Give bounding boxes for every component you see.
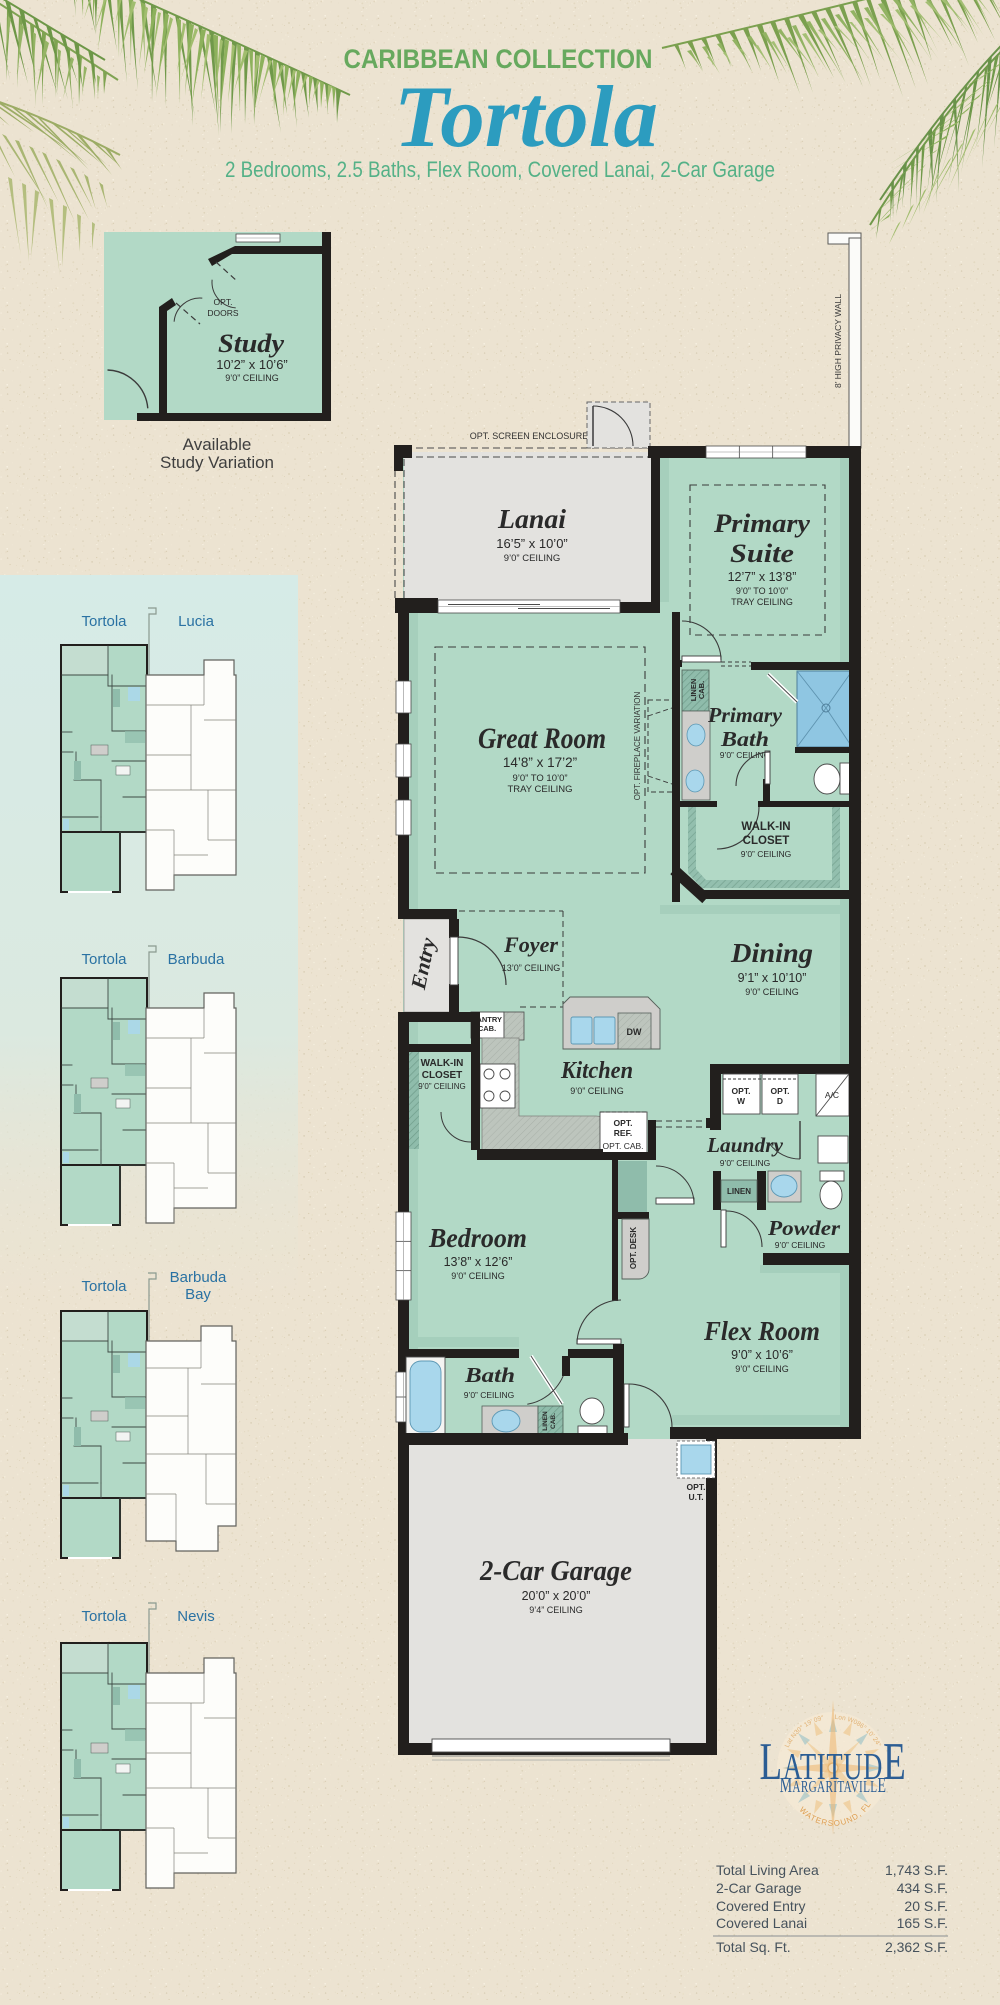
svg-text:10’2” x 10’6”: 10’2” x 10’6” <box>216 357 288 372</box>
svg-text:9’0” CEILING: 9’0” CEILING <box>464 1390 515 1400</box>
svg-text:Barbuda: Barbuda <box>170 1269 227 1286</box>
svg-text:DW: DW <box>627 1027 642 1037</box>
svg-text:1,743 S.F.: 1,743 S.F. <box>885 1862 948 1878</box>
svg-text:OPT. SCREEN ENCLOSURE: OPT. SCREEN ENCLOSURE <box>470 431 589 441</box>
svg-text:20 S.F.: 20 S.F. <box>904 1898 948 1914</box>
svg-text:WALK-IN: WALK-IN <box>421 1058 464 1069</box>
svg-text:Powder: Powder <box>767 1216 841 1240</box>
svg-text:9’0” CEILING: 9’0” CEILING <box>451 1271 505 1281</box>
svg-text:LINEN: LINEN <box>727 1187 751 1196</box>
svg-text:Lanai: Lanai <box>497 504 567 534</box>
svg-text:CLOSET: CLOSET <box>422 1070 463 1081</box>
svg-text:D: D <box>777 1096 783 1106</box>
svg-text:Great Room: Great Room <box>478 722 606 755</box>
svg-text:9’0” CEILING: 9’0” CEILING <box>418 1082 466 1091</box>
svg-text:U.T.: U.T. <box>688 1492 703 1502</box>
svg-text:Available: Available <box>183 435 252 454</box>
svg-text:9’0” CEILING: 9’0” CEILING <box>720 750 771 760</box>
svg-text:OPT.: OPT. <box>771 1086 790 1096</box>
svg-text:OPT.: OPT. <box>687 1482 706 1492</box>
svg-text:Bedroom: Bedroom <box>428 1223 527 1253</box>
svg-text:DOORS: DOORS <box>207 308 239 318</box>
svg-text:8’ HIGH PRIVACY WALL: 8’ HIGH PRIVACY WALL <box>833 294 843 388</box>
svg-text:Tortola: Tortola <box>81 613 127 630</box>
svg-text:Covered Entry: Covered Entry <box>716 1898 805 1914</box>
svg-text:Foyer: Foyer <box>503 932 558 957</box>
svg-text:LINEN: LINEN <box>542 1411 549 1431</box>
svg-text:Tortola: Tortola <box>81 1608 127 1625</box>
svg-text:OPT. FIREPLACE VARIATION: OPT. FIREPLACE VARIATION <box>633 691 642 800</box>
svg-text:Tortola: Tortola <box>81 1278 127 1295</box>
svg-text:Tortola: Tortola <box>81 951 127 968</box>
svg-text:434 S.F.: 434 S.F. <box>897 1880 948 1896</box>
svg-text:12’7” x 13’8”: 12’7” x 13’8” <box>728 570 797 584</box>
svg-text:Dining: Dining <box>730 938 813 968</box>
svg-text:Total Sq. Ft.: Total Sq. Ft. <box>716 1939 791 1955</box>
svg-text:Nevis: Nevis <box>177 1608 215 1625</box>
svg-text:2 Bedrooms, 2.5 Baths, Flex Ro: 2 Bedrooms, 2.5 Baths, Flex Room, Covere… <box>225 157 775 182</box>
svg-text:OPT. DESK: OPT. DESK <box>629 1227 638 1269</box>
svg-text:Covered Lanai: Covered Lanai <box>716 1915 807 1931</box>
svg-text:WALK-IN: WALK-IN <box>741 821 790 833</box>
svg-text:REF.: REF. <box>614 1128 632 1138</box>
svg-text:W: W <box>737 1096 746 1106</box>
svg-text:OPT.: OPT. <box>614 1118 633 1128</box>
svg-text:9’0” CEILING: 9’0” CEILING <box>504 553 561 564</box>
svg-text:Barbuda: Barbuda <box>168 951 225 968</box>
svg-text:9’0” x 10’6”: 9’0” x 10’6” <box>731 1348 793 1362</box>
svg-text:9’0” CEILING: 9’0” CEILING <box>741 849 792 859</box>
svg-text:OPT.: OPT. <box>732 1086 751 1096</box>
svg-text:Kitchen: Kitchen <box>560 1058 633 1084</box>
svg-text:Flex Room: Flex Room <box>703 1316 820 1346</box>
svg-text:9’0” CEILING: 9’0” CEILING <box>720 1158 771 1168</box>
svg-text:9’4” CEILING: 9’4” CEILING <box>529 1605 583 1615</box>
svg-text:A/C: A/C <box>825 1090 839 1100</box>
svg-text:Bath: Bath <box>720 727 769 751</box>
svg-text:20’0” x 20’0”: 20’0” x 20’0” <box>522 1589 591 1603</box>
svg-text:14’8” x 17’2”: 14’8” x 17’2” <box>503 755 577 770</box>
svg-text:CAB.: CAB. <box>550 1413 557 1429</box>
svg-text:9’0” CEILING: 9’0” CEILING <box>735 1364 789 1374</box>
svg-text:2-Car Garage: 2-Car Garage <box>479 1556 632 1587</box>
svg-text:2-Car Garage: 2-Car Garage <box>716 1880 802 1896</box>
svg-text:9’0” TO 10’0”: 9’0” TO 10’0” <box>736 586 788 596</box>
svg-text:Total Living Area: Total Living Area <box>716 1862 819 1878</box>
svg-text:Study: Study <box>218 329 284 358</box>
svg-text:Primary: Primary <box>713 509 811 538</box>
svg-text:2,362 S.F.: 2,362 S.F. <box>885 1939 948 1955</box>
svg-text:9’0” TO 10’0”: 9’0” TO 10’0” <box>512 773 567 784</box>
svg-text:CLOSET: CLOSET <box>743 835 790 847</box>
svg-text:CAB.: CAB. <box>478 1024 496 1033</box>
svg-text:Bath: Bath <box>464 1363 515 1387</box>
svg-text:9’0” CEILING: 9’0” CEILING <box>570 1086 624 1096</box>
svg-text:TRAY CEILING: TRAY CEILING <box>507 784 572 795</box>
svg-text:9’0” CEILING: 9’0” CEILING <box>775 1240 826 1250</box>
svg-text:CAB.: CAB. <box>697 681 706 699</box>
svg-text:Tortola: Tortola <box>394 69 658 166</box>
svg-text:16’5” x 10’0”: 16’5” x 10’0” <box>496 536 568 551</box>
svg-text:Suite: Suite <box>730 539 794 568</box>
svg-text:Study Variation: Study Variation <box>160 453 274 472</box>
svg-text:TRAY CEILING: TRAY CEILING <box>731 597 793 607</box>
svg-text:9’0” CEILING: 9’0” CEILING <box>225 373 279 383</box>
svg-text:Bay: Bay <box>185 1286 211 1303</box>
svg-text:13’8” x 12’6”: 13’8” x 12’6” <box>444 1255 513 1269</box>
svg-text:OPT.: OPT. <box>214 297 233 307</box>
svg-text:Laundry: Laundry <box>706 1133 784 1157</box>
svg-text:13’0” CEILING: 13’0” CEILING <box>502 963 561 973</box>
svg-text:165 S.F.: 165 S.F. <box>897 1915 948 1931</box>
svg-text:Lucia: Lucia <box>178 613 215 630</box>
svg-text:OPT. CAB.: OPT. CAB. <box>602 1141 643 1151</box>
svg-text:9’0” CEILING: 9’0” CEILING <box>745 987 799 997</box>
svg-text:Primary: Primary <box>707 703 783 727</box>
svg-text:9’1” x 10’10”: 9’1” x 10’10” <box>738 971 807 985</box>
